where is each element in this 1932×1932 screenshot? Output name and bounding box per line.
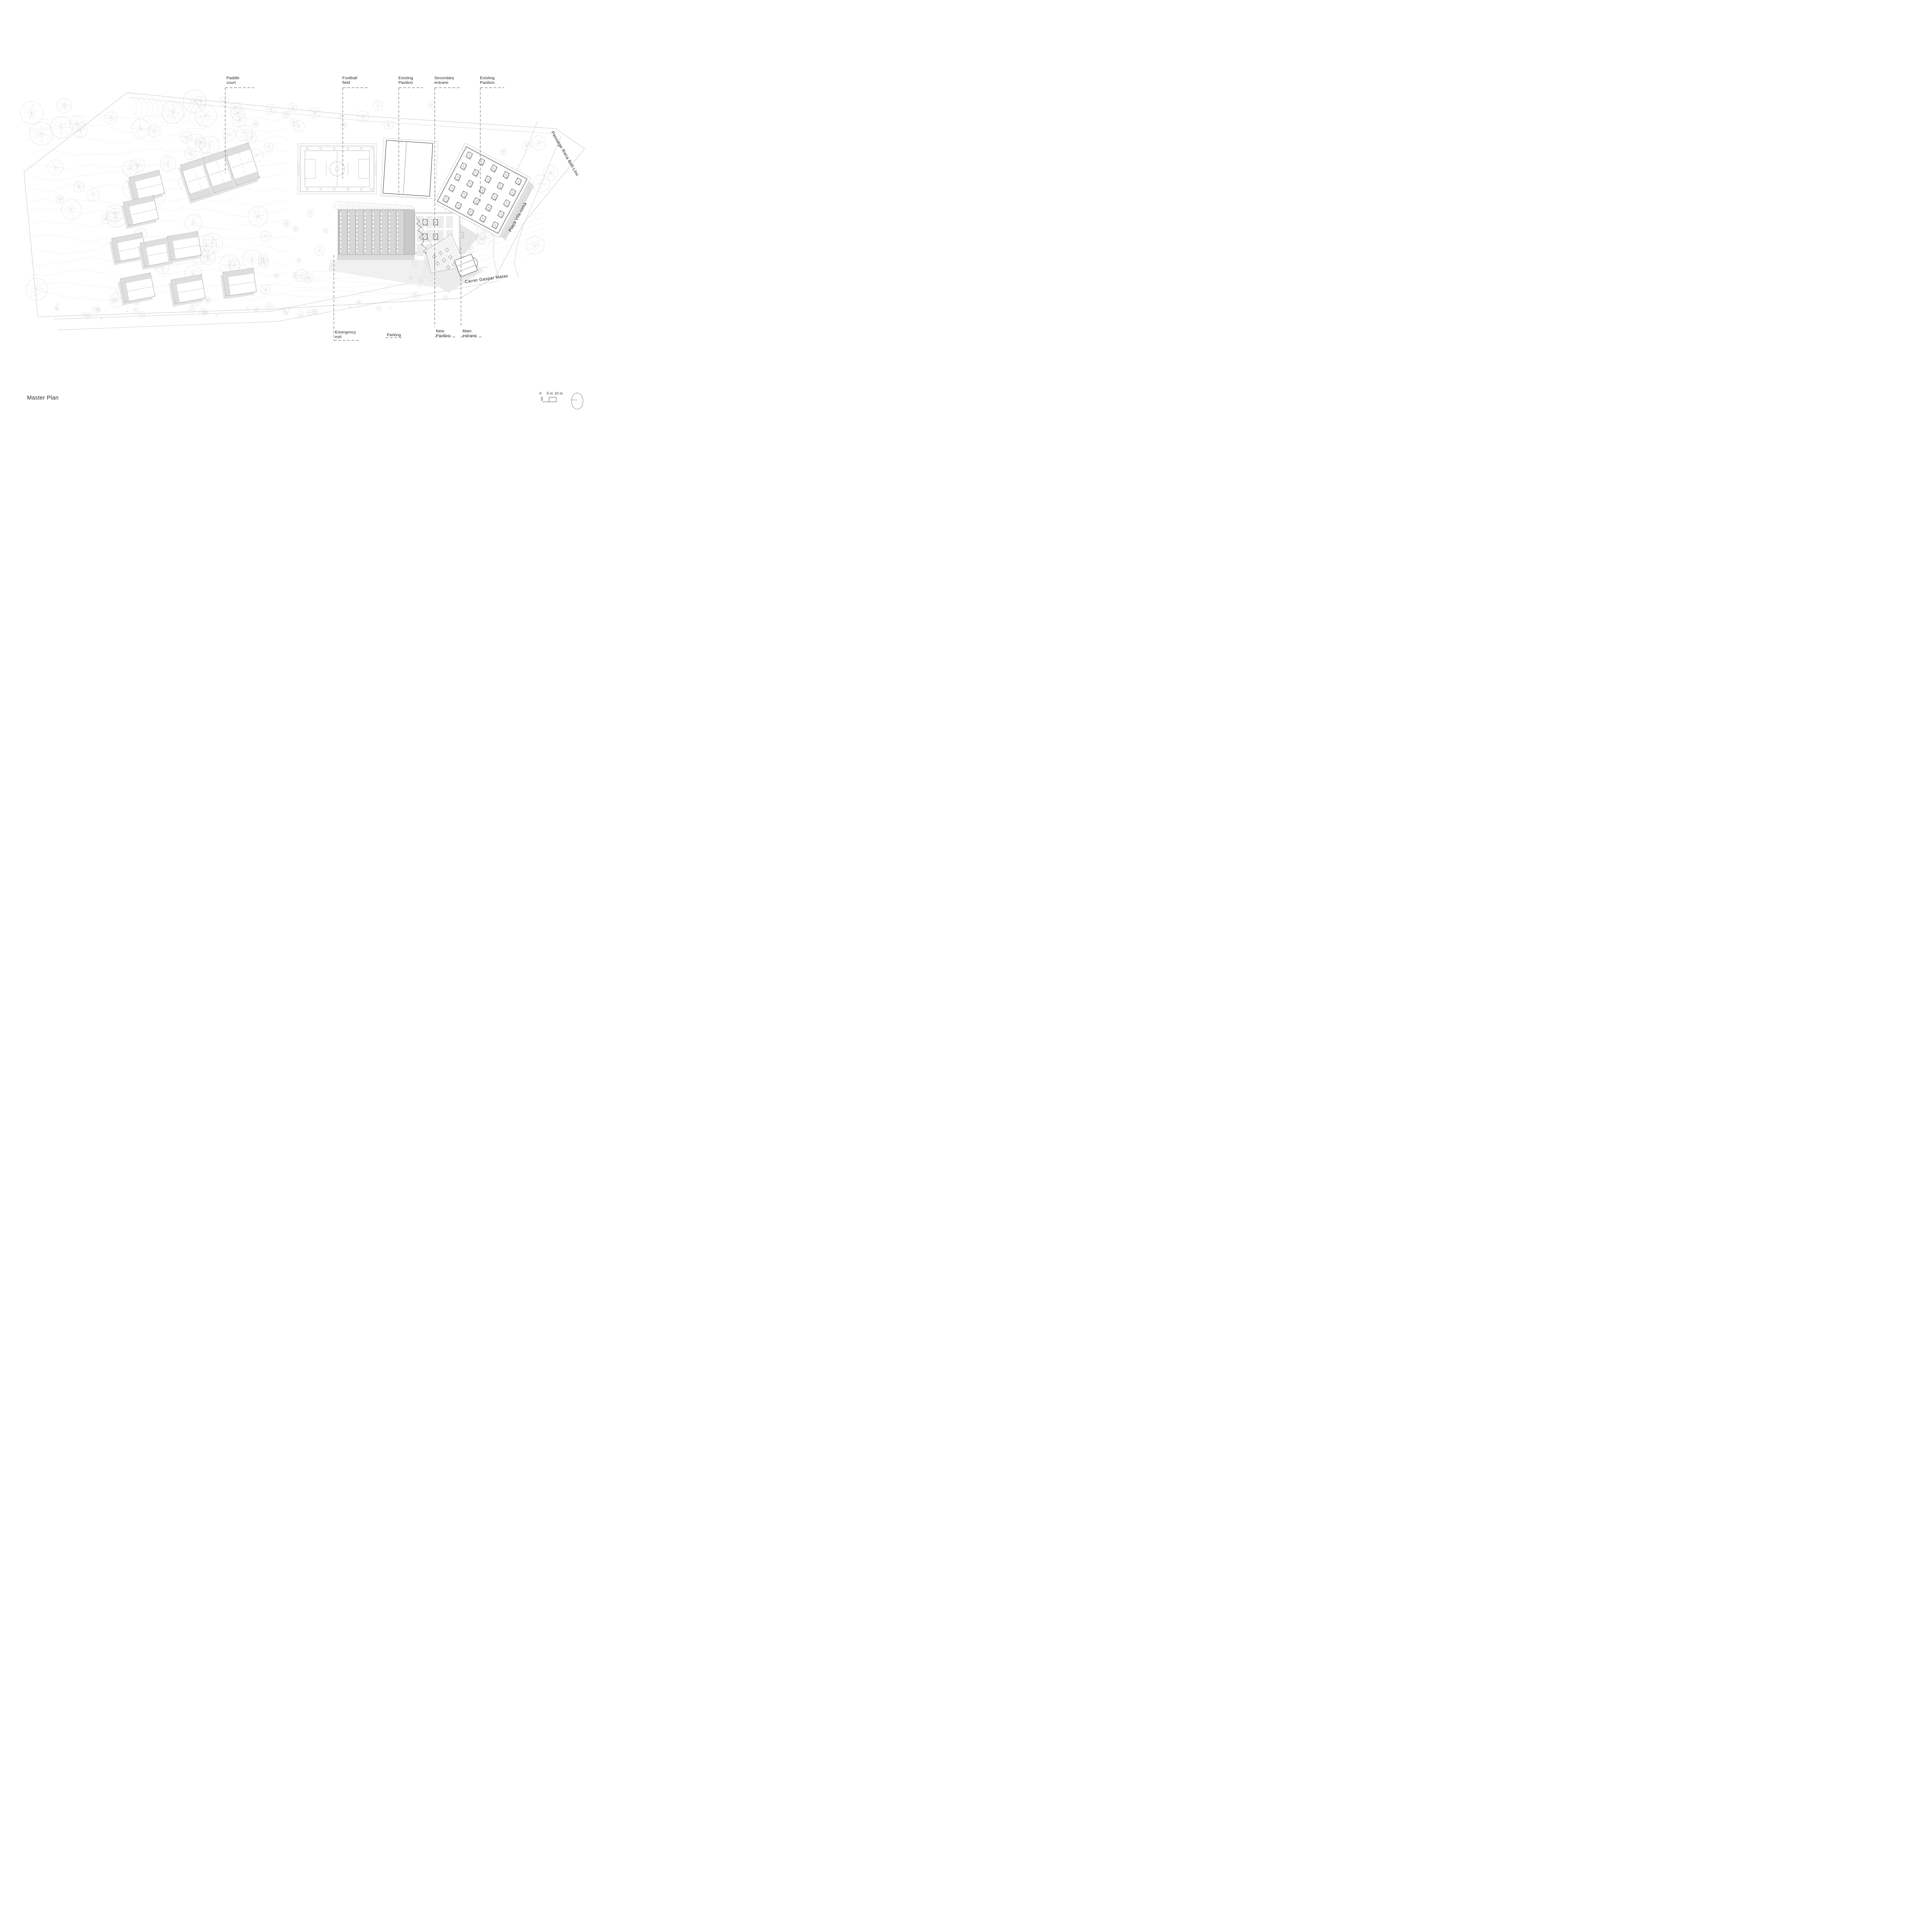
football-field <box>298 144 376 194</box>
scale-label-0: 0 <box>539 391 541 396</box>
tree-icon <box>48 160 63 175</box>
tree-icon <box>288 103 297 112</box>
label-line: field <box>342 80 357 85</box>
shrub-icon <box>126 310 129 313</box>
tree-icon <box>105 112 117 124</box>
tree-icon <box>384 120 393 129</box>
existing-pavilion-building <box>381 138 438 199</box>
label-line: New <box>436 329 451 333</box>
tree-icon <box>131 119 150 138</box>
tree-icon <box>160 156 176 171</box>
paddle-court <box>117 273 156 305</box>
tree-icon <box>304 273 313 283</box>
tree-icon <box>427 100 435 108</box>
label-main-entrance: Main entrane <box>463 329 477 338</box>
label-paddle-court: Paddle court <box>226 76 240 85</box>
tree-icon <box>30 122 53 145</box>
tree-icon <box>295 269 307 281</box>
tree-icon <box>309 107 320 118</box>
tree-icon <box>162 101 184 123</box>
label-line: Paddle <box>226 76 240 80</box>
tree-icon <box>274 273 279 279</box>
shrub-icon <box>99 316 103 320</box>
label-line: Parking <box>387 333 401 337</box>
tree-icon <box>73 122 88 137</box>
tree-icon <box>73 182 84 192</box>
label-line: Existing <box>398 76 413 80</box>
paddle-court <box>168 275 206 307</box>
tree-icon <box>243 250 262 269</box>
label-line: Pavilion <box>398 80 413 85</box>
master-plan-sheet: Paddle court Football field Existing Pav… <box>0 0 618 437</box>
label-line: Main <box>463 329 477 333</box>
tree-icon <box>259 257 269 267</box>
north-symbol <box>571 393 583 409</box>
shrub-icon <box>56 303 60 306</box>
tree-icon <box>340 121 348 129</box>
tree-icon <box>231 107 245 120</box>
tree-icon <box>187 134 204 151</box>
paddle-court <box>121 196 159 229</box>
tree-icon <box>307 209 314 217</box>
label-line: exit <box>335 335 356 339</box>
tree-icon <box>531 136 546 150</box>
tree-icon <box>259 255 268 264</box>
tree-icon <box>248 207 268 226</box>
tree-icon <box>522 141 531 150</box>
tree-icon <box>532 175 550 192</box>
new-pavilion <box>337 209 415 260</box>
tree-icon <box>50 116 72 138</box>
tree-icon <box>195 105 216 126</box>
tree-icon <box>133 308 138 313</box>
tree-icon <box>61 200 82 220</box>
tree-icon <box>357 300 361 304</box>
label-new-pavilion: New Pavilion <box>436 329 451 338</box>
paddle-courts <box>109 143 260 306</box>
page-title: Master Plan <box>27 395 59 401</box>
tree-icon <box>185 214 202 231</box>
label-line: Pavilion <box>480 80 495 85</box>
tree-icon <box>199 308 206 316</box>
label-line: Football <box>342 76 357 80</box>
tree-icon <box>196 96 206 107</box>
tree-icon <box>252 121 259 128</box>
tree-icon <box>183 90 206 113</box>
label-line: entrane <box>434 80 454 85</box>
tree-icon <box>223 128 235 141</box>
tree-icon <box>26 279 48 301</box>
tree-icon <box>323 228 328 234</box>
tree-icon <box>55 307 59 311</box>
tree-icon <box>306 309 313 316</box>
tree-icon <box>296 258 301 263</box>
label-line: Existing <box>480 76 495 80</box>
tree-icon <box>138 311 145 318</box>
tree-icon <box>261 285 270 294</box>
tree-icon <box>500 148 507 155</box>
label-parking: Parking <box>387 333 401 337</box>
shrub-icon <box>388 306 392 310</box>
tree-icon <box>260 231 271 242</box>
label-secondary-entrance: Secondary entrane <box>434 76 454 85</box>
tree-icon <box>376 306 381 311</box>
site-plan-drawing <box>0 0 618 437</box>
tree-icon <box>315 246 325 256</box>
tree-icon <box>264 142 273 151</box>
label-existing-pavilion-2: Existing Pavilion <box>480 76 495 85</box>
tree-icon <box>543 165 558 180</box>
tree-icon <box>180 131 192 143</box>
label-line: Pavilion <box>436 333 451 338</box>
scale-label-5m: 5 m <box>547 391 553 396</box>
tree-icon <box>70 116 85 132</box>
tree-icon <box>266 104 276 114</box>
scale-bar <box>541 397 556 402</box>
tree-icon <box>56 195 64 203</box>
tree-icon <box>283 111 290 118</box>
tree-icon <box>373 101 383 111</box>
label-line: entrane <box>463 333 477 338</box>
label-football-field: Football field <box>342 76 357 85</box>
shrub-icon <box>417 285 421 289</box>
shrub-icon <box>214 313 218 317</box>
tree-icon <box>293 121 304 132</box>
tree-icon <box>20 102 43 124</box>
tree-icon <box>219 96 229 106</box>
label-line: court <box>226 80 240 85</box>
tree-icon <box>57 99 71 113</box>
paddle-court <box>165 231 202 263</box>
paddle-court <box>220 268 257 299</box>
tree-icon <box>265 303 272 310</box>
tree-icon <box>229 259 240 270</box>
label-emergency-exit: Emergency exit <box>335 330 356 339</box>
tree-icon <box>101 214 111 224</box>
label-existing-pavilion-1: Existing Pavilion <box>398 76 413 85</box>
label-line: Secondary <box>434 76 454 80</box>
scale-label-10m: 10 m <box>554 391 563 396</box>
shrub-icon <box>81 312 85 316</box>
tree-icon <box>293 226 298 231</box>
tree-icon <box>86 188 99 201</box>
tree-icon <box>106 204 123 221</box>
tree-icon <box>148 125 160 137</box>
label-line: Emergency <box>335 330 356 335</box>
tree-icon <box>232 113 246 127</box>
tree-icon <box>283 220 290 228</box>
